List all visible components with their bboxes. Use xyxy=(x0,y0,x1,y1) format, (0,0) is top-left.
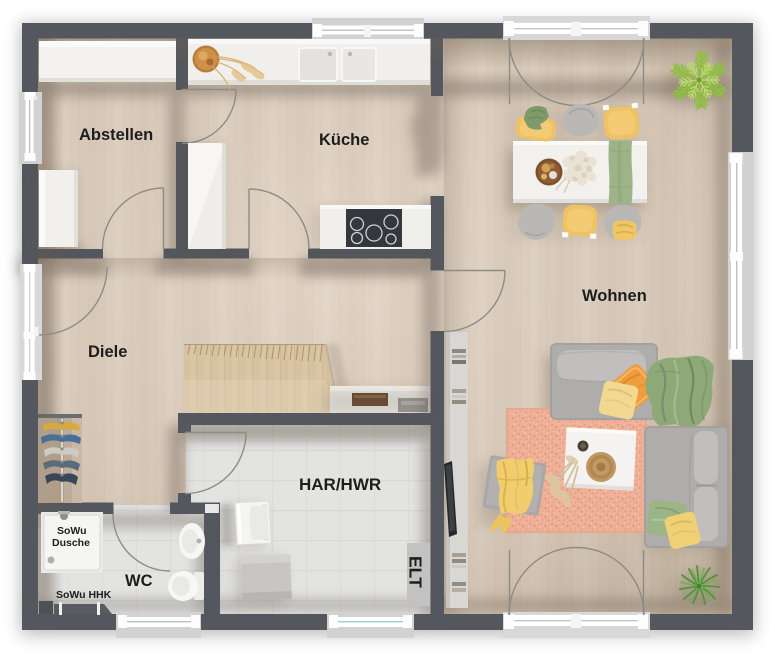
svg-text:Abstellen: Abstellen xyxy=(79,126,153,144)
svg-text:Wohnen: Wohnen xyxy=(582,287,647,305)
svg-text:Diele: Diele xyxy=(88,343,127,361)
svg-text:SoWu: SoWu xyxy=(57,525,87,537)
svg-text:Dusche: Dusche xyxy=(52,537,90,549)
svg-text:ELT: ELT xyxy=(406,556,426,588)
svg-text:WC: WC xyxy=(125,572,153,590)
svg-text:Küche: Küche xyxy=(319,131,369,149)
svg-text:HAR/HWR: HAR/HWR xyxy=(299,475,381,494)
svg-text:SoWu HHK: SoWu HHK xyxy=(56,589,112,601)
